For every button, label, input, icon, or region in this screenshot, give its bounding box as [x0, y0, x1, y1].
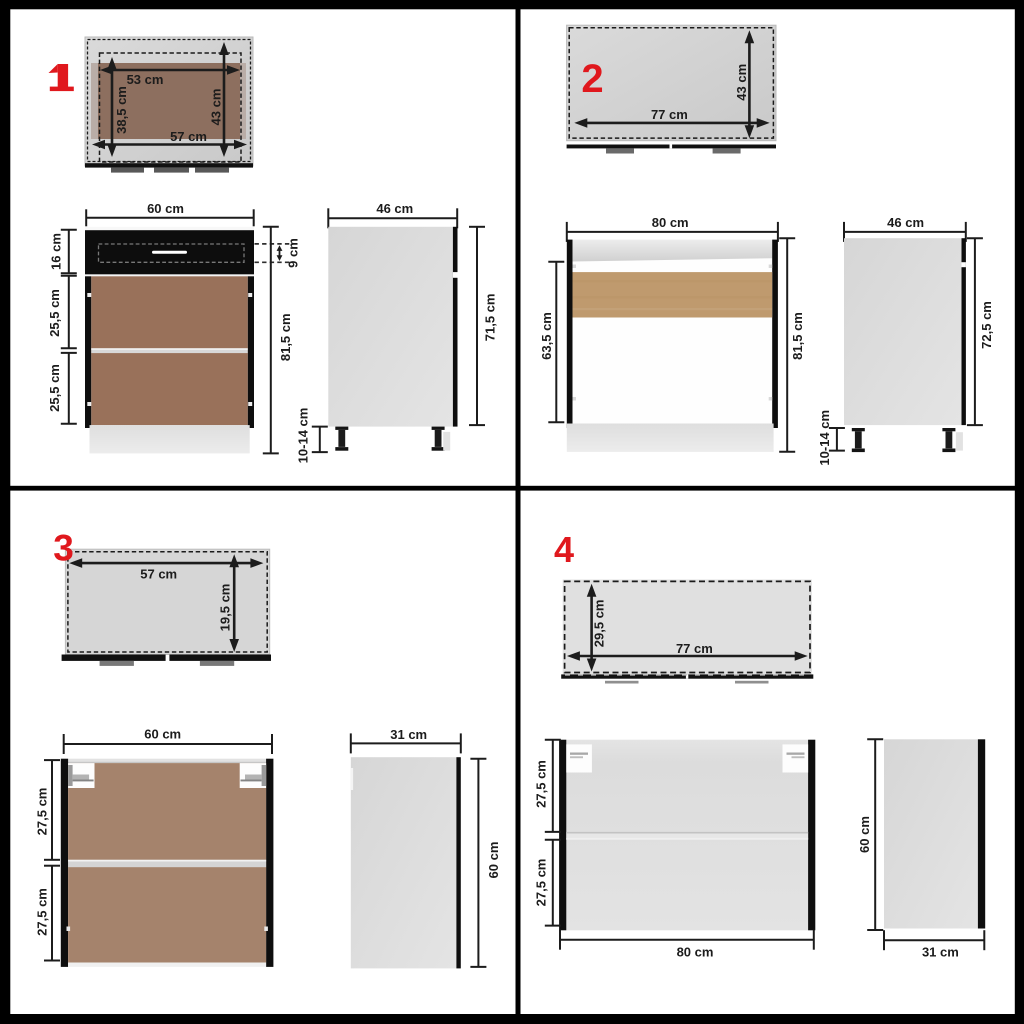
svg-text:38,5 cm: 38,5 cm [114, 86, 129, 134]
svg-text:3: 3 [53, 528, 74, 569]
svg-text:81,5 cm: 81,5 cm [278, 313, 293, 361]
svg-text:53 cm: 53 cm [127, 72, 164, 87]
svg-text:27,5 cm: 27,5 cm [533, 859, 548, 907]
svg-text:80 cm: 80 cm [652, 215, 689, 230]
svg-text:2: 2 [581, 57, 603, 101]
svg-text:43 cm: 43 cm [734, 64, 749, 101]
svg-text:60 cm: 60 cm [147, 201, 184, 216]
svg-text:19,5 cm: 19,5 cm [217, 584, 232, 632]
svg-text:60 cm: 60 cm [857, 816, 872, 853]
svg-text:60 cm: 60 cm [144, 727, 181, 742]
svg-text:43 cm: 43 cm [209, 89, 224, 126]
svg-text:27,5 cm: 27,5 cm [35, 788, 50, 836]
svg-text:71,5 cm: 71,5 cm [483, 294, 498, 342]
svg-text:81,5 cm: 81,5 cm [790, 312, 805, 360]
svg-text:72,5 cm: 72,5 cm [979, 301, 994, 349]
svg-text:77 cm: 77 cm [651, 107, 688, 122]
svg-text:31 cm: 31 cm [390, 727, 427, 742]
svg-text:80 cm: 80 cm [677, 945, 714, 960]
svg-text:57 cm: 57 cm [140, 566, 177, 581]
svg-text:29,5 cm: 29,5 cm [592, 600, 607, 648]
svg-text:63,5 cm: 63,5 cm [539, 312, 554, 360]
svg-text:25,5 cm: 25,5 cm [47, 289, 62, 337]
svg-text:57 cm: 57 cm [170, 129, 207, 144]
svg-text:10-14 cm: 10-14 cm [295, 408, 310, 464]
svg-text:46 cm: 46 cm [887, 215, 924, 230]
svg-text:4: 4 [554, 529, 574, 570]
svg-text:10-14 cm: 10-14 cm [817, 410, 832, 466]
svg-text:77 cm: 77 cm [676, 641, 713, 656]
svg-text:27,5 cm: 27,5 cm [533, 760, 548, 808]
svg-text:46 cm: 46 cm [376, 201, 413, 216]
svg-text:25,5 cm: 25,5 cm [47, 364, 62, 412]
svg-text:9 cm: 9 cm [286, 238, 301, 268]
svg-text:60 cm: 60 cm [486, 842, 501, 879]
svg-text:31 cm: 31 cm [922, 945, 959, 960]
svg-text:27,5 cm: 27,5 cm [35, 888, 50, 936]
svg-text:16 cm: 16 cm [49, 233, 64, 270]
